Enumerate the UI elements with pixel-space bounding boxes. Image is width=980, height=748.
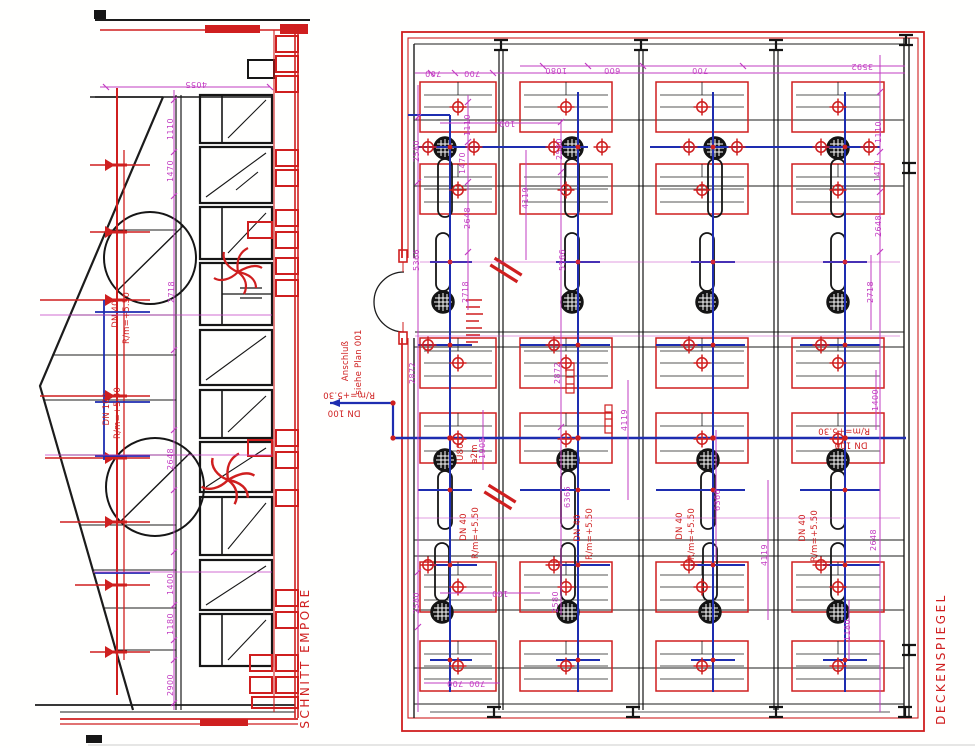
dim-label: 2648 <box>167 448 175 470</box>
sprinkler-heads <box>420 99 878 675</box>
pipe-arrow <box>330 399 340 407</box>
window-block <box>200 442 272 492</box>
pipe-junctions <box>390 145 847 663</box>
dim-label: 6366 <box>714 489 722 511</box>
dim-label: 1110 <box>875 121 883 143</box>
branch-dn40: DN 40 <box>799 514 808 541</box>
dim-label: 2718 <box>168 281 176 303</box>
dim-label: 2718 <box>462 281 470 303</box>
dim-label: 4055 <box>185 80 207 88</box>
dimension-lines-left <box>40 84 273 710</box>
window-detail <box>248 60 274 78</box>
branch-r550: R/m=+5.50 <box>688 508 697 560</box>
pipe-label-r530-left: R/m=+5.30 <box>114 387 123 439</box>
window-block <box>200 390 272 438</box>
branch-dn40: DN 40 <box>676 512 685 539</box>
dim-label: 2580 <box>556 138 564 160</box>
pendant-lights <box>431 137 849 623</box>
window-block <box>200 497 272 555</box>
dim-label: 2580 <box>413 592 421 614</box>
dim-label: 1905 <box>479 437 487 459</box>
sprinkler-pipes-left <box>40 88 150 695</box>
branch-dn40: DN 40 <box>574 514 583 541</box>
pipe-label-dn40-left: DN 40 <box>112 300 121 327</box>
main-r530-right: R/m=+5.30 <box>818 426 870 435</box>
ceiling-panels <box>420 82 884 691</box>
dim-label: 2648 <box>464 207 472 229</box>
red-ladders <box>566 363 612 433</box>
dim-label: 100 <box>499 119 515 127</box>
dim-label: 2648 <box>870 529 878 551</box>
dim-label: 1180 <box>167 613 175 635</box>
dim-label: 2872 <box>554 362 562 384</box>
dim-label: 2580 <box>413 140 421 162</box>
dim-label: 1110 <box>167 118 175 140</box>
dim-label: 6366 <box>564 486 572 508</box>
window-block <box>200 614 272 666</box>
door-swing <box>374 250 415 344</box>
dim-label: 1110 <box>464 114 472 136</box>
dim-label: 2648 <box>875 215 883 237</box>
dim-label: 1080 <box>545 66 567 74</box>
branch-r550: R/m=+5.50 <box>811 510 820 562</box>
window-block <box>200 330 272 385</box>
dim-label: 4119 <box>621 409 629 431</box>
dim-label: 700 <box>692 66 708 74</box>
right-drawing-title: DECKENSPIEGEL <box>935 593 947 725</box>
dim-label: 1470 <box>167 160 175 182</box>
dim-label: 2900 <box>167 674 175 696</box>
connection-dn100: DN 100 <box>327 408 360 417</box>
red-details <box>466 258 612 509</box>
dim-label: 1470 <box>874 160 882 182</box>
pipe-label-dn100-left: DN 100 <box>103 392 112 425</box>
connection-note-line2: siehe Plan 001 <box>355 329 364 394</box>
window-block <box>200 147 272 203</box>
dim-label: 700 <box>464 69 480 77</box>
dim-label: 2580 <box>552 591 560 613</box>
dim-label: 600 <box>604 66 620 74</box>
dim-label: 2718 <box>867 281 875 303</box>
dim-label: 5366 <box>413 249 421 271</box>
inner-wall <box>176 95 181 710</box>
window-block <box>200 207 272 259</box>
dim-label: 700 <box>469 679 485 687</box>
left-drawing-title: SCHNITT EMPORE <box>299 587 311 728</box>
left-red-borders <box>60 24 308 726</box>
duct-circles <box>104 212 204 536</box>
drawing-canvas <box>0 0 980 748</box>
dim-label: 2872 <box>409 362 417 384</box>
dim-label: 100 <box>492 589 508 597</box>
scanned-plan-page: SCHNITT EMPORE DN 40 R/m=+5.50 DN 100 R/… <box>0 0 980 748</box>
window-block <box>200 95 272 143</box>
window-block <box>200 560 272 610</box>
dim-label: 700 <box>447 679 463 687</box>
dim-label: 4119 <box>761 544 769 566</box>
branch-pipes <box>418 147 880 660</box>
branch-r550: R/m=+5.50 <box>472 507 481 559</box>
main-dn100-right: DN 100 <box>834 440 867 449</box>
riser-label-u80: U80 <box>457 443 466 461</box>
pipe-label-r550-left: R/m=+5.50 <box>123 292 132 344</box>
dim-label: 1180 <box>844 619 852 641</box>
branch-dn40: DN 40 <box>460 513 469 540</box>
dim-label: 1400 <box>872 389 880 411</box>
branch-r550: R/m=+5.50 <box>586 508 595 560</box>
dim-label: 700 <box>425 69 441 77</box>
dim-label: 1470 <box>459 152 467 174</box>
dim-label: 4119 <box>522 187 530 209</box>
dim-label: 1400 <box>167 573 175 595</box>
connection-r530: R/m=+5.30 <box>323 390 375 399</box>
window-wall <box>200 60 274 666</box>
dim-label: 5366 <box>559 249 567 271</box>
dim-label: 3592 <box>851 62 873 70</box>
structural-beams <box>499 50 778 710</box>
right-ceiling-plan <box>330 32 924 731</box>
connection-note-line1: Anschluß <box>342 341 351 381</box>
